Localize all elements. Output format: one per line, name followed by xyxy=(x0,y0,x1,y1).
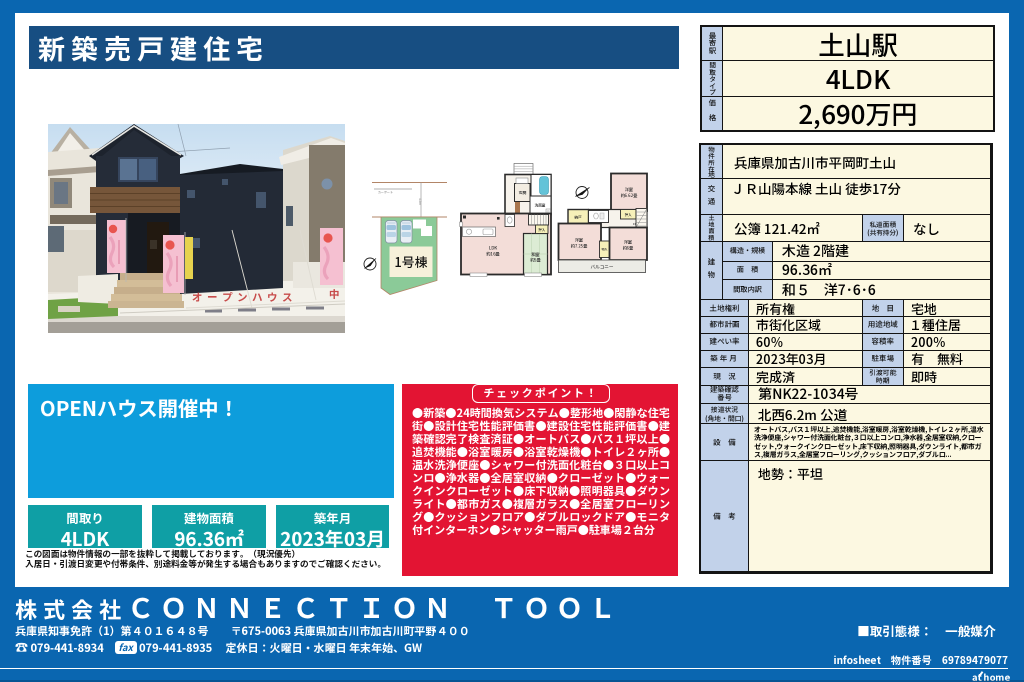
svg-text:4.5m: 4.5m xyxy=(418,198,422,205)
svg-text:バルコニー: バルコニー xyxy=(591,265,614,271)
svg-text:オープンハウス: オープンハウス xyxy=(192,290,297,305)
svg-text:約7.25畳: 約7.25畳 xyxy=(571,244,588,250)
svg-text:物入: 物入 xyxy=(600,248,608,252)
svg-text:中: 中 xyxy=(329,287,340,302)
svg-text:約6畳: 約6畳 xyxy=(623,246,634,252)
svg-text:洗面室: 洗面室 xyxy=(534,204,546,209)
svg-text:DN: DN xyxy=(633,222,637,226)
svg-text:1号棟: 1号棟 xyxy=(395,252,428,271)
svg-text:押入: 押入 xyxy=(537,227,545,232)
svg-text:カーポート: カーポート xyxy=(378,191,393,195)
svg-text:約16畳: 約16畳 xyxy=(486,252,500,258)
svg-text:納戸: 納戸 xyxy=(573,216,582,221)
svg-text:押入: 押入 xyxy=(624,212,632,217)
svg-text:玄関: 玄関 xyxy=(518,191,527,196)
svg-text:約5畳: 約5畳 xyxy=(530,258,541,264)
svg-text:約6.62畳: 約6.62畳 xyxy=(621,193,638,199)
